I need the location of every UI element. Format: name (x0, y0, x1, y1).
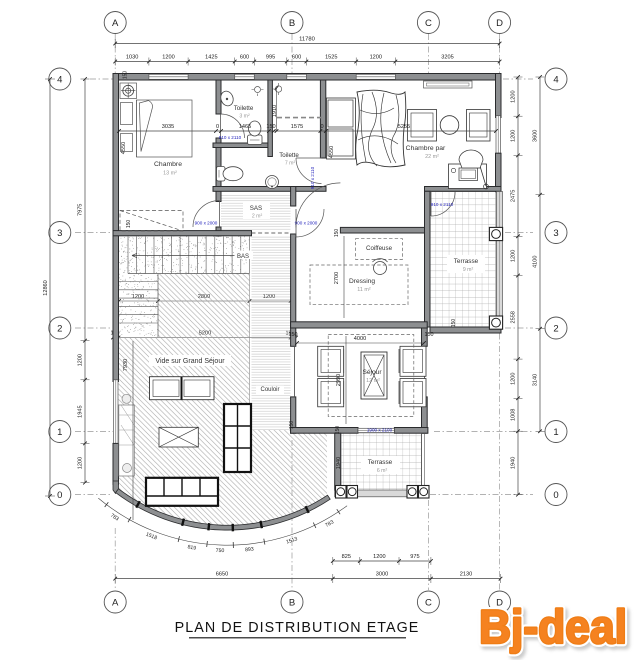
svg-text:3140: 3140 (533, 374, 539, 386)
svg-text:Toilette: Toilette (279, 152, 299, 159)
svg-text:Chambre: Chambre (154, 161, 182, 168)
svg-text:A: A (112, 18, 119, 29)
svg-text:Dressing: Dressing (349, 278, 375, 285)
svg-text:4100: 4100 (533, 255, 539, 267)
svg-text:1200: 1200 (78, 354, 84, 366)
svg-text:D: D (496, 18, 503, 29)
svg-text:PLAN DE DISTRIBUTION ETAGE: PLAN DE DISTRIBUTION ETAGE (175, 620, 420, 636)
svg-text:150: 150 (451, 319, 457, 328)
svg-text:4550: 4550 (329, 146, 335, 158)
svg-text:0: 0 (216, 124, 219, 130)
svg-text:1200: 1200 (511, 372, 517, 384)
svg-text:2700: 2700 (334, 272, 340, 284)
svg-text:2: 2 (553, 323, 558, 334)
svg-text:1: 1 (57, 427, 62, 438)
svg-text:2990: 2990 (336, 374, 342, 386)
svg-text:150: 150 (126, 220, 132, 229)
svg-text:3: 3 (57, 228, 62, 239)
svg-text:1900 x 2100: 1900 x 2100 (367, 427, 393, 432)
svg-text:2130: 2130 (460, 572, 472, 578)
svg-text:150: 150 (335, 426, 341, 435)
svg-text:SAS: SAS (250, 205, 262, 212)
svg-text:9 m²: 9 m² (463, 267, 474, 273)
svg-text:150: 150 (334, 229, 340, 238)
svg-text:7975: 7975 (78, 204, 84, 216)
svg-text:Coiffeuse: Coiffeuse (366, 245, 393, 252)
svg-text:1200: 1200 (511, 130, 517, 142)
svg-text:4: 4 (57, 74, 62, 85)
svg-text:5255: 5255 (398, 124, 410, 130)
svg-text:C: C (425, 18, 432, 29)
svg-text:11780: 11780 (299, 37, 315, 43)
svg-text:910 x 2110: 910 x 2110 (431, 202, 454, 207)
svg-text:150: 150 (425, 332, 434, 338)
svg-text:150: 150 (289, 332, 298, 338)
svg-text:4550: 4550 (121, 142, 127, 154)
svg-text:13 m²: 13 m² (163, 171, 177, 177)
svg-text:1465: 1465 (239, 124, 251, 130)
svg-text:2: 2 (57, 323, 62, 334)
svg-text:2 m²: 2 m² (252, 214, 263, 220)
svg-text:900 x 2000: 900 x 2000 (195, 221, 218, 226)
svg-text:0: 0 (320, 124, 323, 130)
svg-text:7930: 7930 (123, 359, 129, 371)
svg-text:750: 750 (216, 548, 225, 554)
svg-text:150: 150 (289, 421, 295, 430)
svg-text:Chambre par: Chambre par (406, 145, 446, 152)
svg-text:Terrasse: Terrasse (368, 459, 393, 466)
svg-text:3205: 3205 (441, 55, 453, 61)
svg-text:1200: 1200 (511, 250, 517, 262)
svg-text:150: 150 (266, 124, 275, 130)
svg-text:1200: 1200 (373, 554, 385, 560)
svg-text:BAS: BAS (237, 254, 249, 260)
svg-text:3600: 3600 (533, 130, 539, 142)
svg-text:Toilette: Toilette (234, 105, 254, 112)
svg-text:1525: 1525 (325, 55, 337, 61)
svg-text:A: A (112, 597, 119, 608)
svg-text:6 m²: 6 m² (377, 468, 388, 474)
svg-text:1575: 1575 (291, 124, 303, 130)
svg-text:600: 600 (240, 55, 249, 61)
svg-text:1030: 1030 (126, 55, 138, 61)
svg-text:600: 600 (292, 55, 301, 61)
svg-text:1200: 1200 (132, 294, 144, 300)
svg-text:0: 0 (57, 490, 62, 501)
svg-text:B: B (289, 18, 295, 29)
svg-text:3 m²: 3 m² (239, 114, 250, 120)
svg-text:1940: 1940 (511, 457, 517, 469)
svg-text:910 x 2110: 910 x 2110 (219, 135, 242, 140)
svg-text:1200: 1200 (370, 55, 382, 61)
svg-text:2558: 2558 (511, 311, 517, 323)
svg-text:1008: 1008 (511, 409, 517, 421)
svg-text:3: 3 (553, 228, 558, 239)
svg-text:Couloir: Couloir (260, 387, 279, 393)
svg-text:Terrasse: Terrasse (454, 258, 479, 265)
svg-text:Bj-deal: Bj-deal (479, 600, 627, 653)
svg-text:12860: 12860 (43, 280, 49, 296)
svg-text:6650: 6650 (216, 572, 228, 578)
svg-text:4: 4 (553, 74, 558, 85)
svg-text:2475: 2475 (511, 190, 517, 202)
svg-text:150: 150 (123, 71, 129, 80)
svg-text:7 m²: 7 m² (285, 161, 296, 167)
svg-text:910 x 2110: 910 x 2110 (310, 166, 315, 189)
svg-text:1200: 1200 (78, 457, 84, 469)
svg-text:1425: 1425 (205, 55, 217, 61)
svg-text:11 m²: 11 m² (357, 287, 371, 293)
svg-text:900 x 2000: 900 x 2000 (295, 221, 318, 226)
svg-text:1940: 1940 (336, 457, 342, 469)
svg-text:22 m²: 22 m² (425, 154, 439, 160)
svg-text:0: 0 (553, 490, 558, 501)
svg-text:995: 995 (266, 55, 275, 61)
svg-text:Séjour: Séjour (362, 369, 382, 376)
svg-text:1200: 1200 (162, 55, 174, 61)
svg-text:1: 1 (553, 427, 558, 438)
svg-text:Vide sur Grand Séjour: Vide sur Grand Séjour (155, 358, 225, 365)
svg-text:3000: 3000 (376, 572, 388, 578)
svg-text:3035: 3035 (162, 124, 174, 130)
svg-text:C: C (425, 597, 432, 608)
svg-text:4000: 4000 (354, 336, 366, 342)
svg-text:893: 893 (245, 546, 254, 553)
svg-text:825: 825 (342, 554, 351, 560)
svg-text:B: B (289, 597, 295, 608)
svg-text:975: 975 (410, 554, 419, 560)
svg-text:1910: 1910 (272, 105, 278, 117)
svg-text:1945: 1945 (78, 405, 84, 417)
svg-text:1200: 1200 (511, 90, 517, 102)
svg-text:12 m²: 12 m² (366, 378, 380, 384)
